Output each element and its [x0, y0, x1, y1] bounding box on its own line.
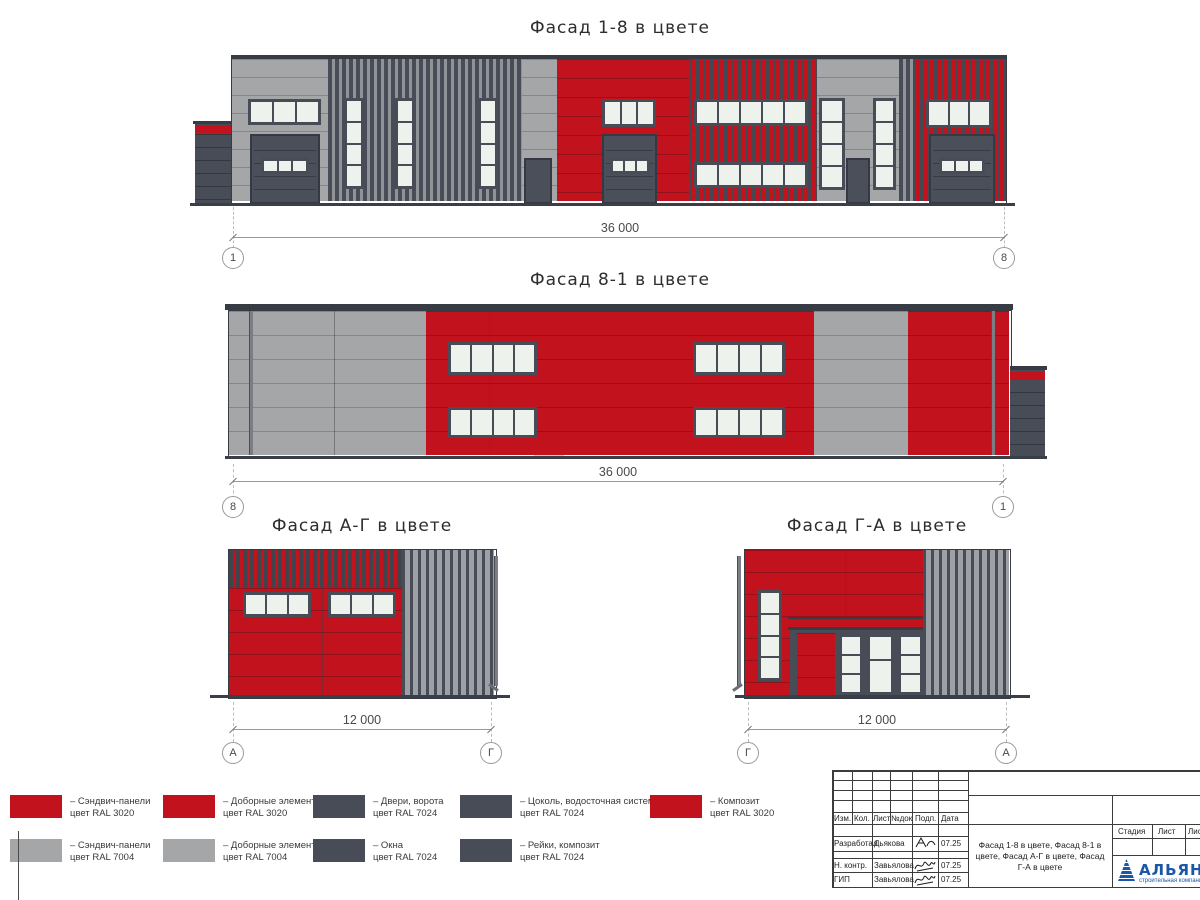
legend-label: – Композит — [710, 796, 774, 808]
facade-1-8-building — [231, 55, 1007, 205]
panel-seam — [322, 588, 323, 696]
title-block-line — [1112, 855, 1200, 856]
window-pane — [822, 167, 842, 187]
legend-item: – Рейки, композитцвет RAL 7024 — [460, 839, 600, 863]
slat-section-gray — [402, 550, 494, 696]
axis-bubble: 8 — [993, 247, 1015, 269]
dimension-label: 12 000 — [343, 713, 381, 727]
window-pane — [696, 345, 716, 372]
window-pane — [901, 656, 920, 673]
title-block-line — [832, 770, 1200, 772]
window-pane — [876, 101, 893, 121]
legend-label: цвет RAL 3020 — [223, 808, 322, 820]
window-pane — [622, 102, 637, 124]
window-pane — [876, 167, 893, 187]
window-pane — [901, 637, 920, 654]
title-block-line — [872, 770, 873, 887]
signature-role: Разработал — [834, 839, 878, 848]
dimension-label: 36 000 — [601, 221, 639, 235]
legend-label: цвет RAL 7024 — [373, 808, 444, 820]
window-pane — [293, 161, 306, 171]
facade-g-a-title: Фасад Г-А в цвете — [787, 516, 967, 536]
legend-item: – Цоколь, водосточная системацвет RAL 70… — [460, 795, 660, 819]
dimension-label: 36 000 — [599, 465, 637, 479]
facade-a-g-drawing — [210, 548, 510, 700]
legend-item: – Доборные элементыцвет RAL 7004 — [163, 839, 322, 863]
panel-seam — [334, 311, 335, 455]
company-tagline: строительная компания — [1139, 878, 1200, 884]
slat-section-gray — [923, 550, 1009, 696]
title-block-line — [1185, 824, 1186, 855]
downpipe — [249, 311, 253, 455]
window-pane — [842, 656, 860, 673]
window-pane — [398, 123, 412, 143]
ground-line — [210, 695, 510, 698]
legend-item: – Окнацвет RAL 7024 — [313, 839, 437, 863]
window-pane — [472, 345, 491, 372]
window-pane — [761, 637, 779, 657]
panel-section-gray — [814, 311, 908, 455]
legend-item: – Доборные элементыцвет RAL 3020 — [163, 795, 322, 819]
window-pane — [274, 102, 295, 122]
title-block-line — [938, 770, 939, 887]
revision-header-cell: Подп. — [915, 814, 936, 823]
garage-door-window — [261, 158, 309, 174]
window — [448, 407, 537, 438]
window — [448, 342, 537, 375]
window-pane — [297, 102, 318, 122]
legend-label: – Доборные элементы — [223, 796, 322, 808]
window-pane — [515, 345, 534, 372]
axis-bubble: А — [995, 742, 1017, 764]
window — [478, 98, 498, 189]
window — [873, 98, 896, 190]
legend-item: – Композитцвет RAL 3020 — [650, 795, 774, 819]
window — [694, 162, 808, 188]
extension-line — [1006, 702, 1007, 742]
axis-bubble: 1 — [992, 496, 1014, 518]
signature-date: 07.25 — [941, 861, 961, 870]
window-pane — [785, 165, 805, 185]
window-pane — [613, 161, 623, 171]
window-pane — [374, 595, 393, 614]
garage-door — [929, 134, 995, 204]
window-pane — [950, 102, 969, 125]
window-pane — [625, 161, 635, 171]
title-block-line — [1152, 824, 1153, 855]
stage-header-cell: Стадия — [1118, 827, 1145, 836]
slat-strip — [899, 59, 913, 201]
panel-section-gray — [229, 311, 426, 455]
legend-label: цвет RAL 3020 — [70, 808, 150, 820]
facade-1-8-drawing — [195, 55, 1010, 213]
window-pane — [970, 102, 989, 125]
window-pane — [481, 166, 495, 186]
stage-header-cell: Лист — [1158, 827, 1175, 836]
sheet-description: Фасад 1-8 в цвете, Фасад 8-1 в цвете, Фа… — [972, 828, 1108, 884]
door-rail — [870, 659, 891, 661]
legend-swatch — [460, 795, 512, 818]
window — [819, 98, 845, 190]
window — [693, 342, 785, 375]
legend-label: цвет RAL 3020 — [710, 808, 774, 820]
dimension-line — [748, 729, 1006, 730]
window-pane — [481, 123, 495, 143]
window-pane — [970, 161, 982, 171]
company-name: АЛЬЯНС — [1139, 861, 1200, 879]
revision-header-cell: Лист — [873, 814, 890, 823]
facade-g-a-drawing — [735, 548, 1030, 700]
legend-label: – Цоколь, водосточная система — [520, 796, 660, 808]
title-block-line — [968, 795, 1200, 796]
legend-swatch — [460, 839, 512, 862]
legend-swatch — [163, 795, 215, 818]
window-pane — [761, 593, 779, 613]
facade-8-1-title: Фасад 8-1 в цвете — [530, 270, 710, 290]
window-pane — [398, 101, 412, 121]
revision-header-cell: Дата — [941, 814, 959, 823]
window — [758, 590, 782, 681]
signature-role: ГИП — [834, 875, 850, 884]
legend-label: – Доборные элементы — [223, 840, 322, 852]
window-pane — [876, 145, 893, 165]
title-block-line — [1112, 838, 1200, 839]
window-pane — [762, 410, 782, 435]
window-pane — [761, 658, 779, 678]
legend-item: – Двери, воротацвет RAL 7024 — [313, 795, 444, 819]
signature-name: Завьялова — [874, 875, 914, 884]
garage-door-window — [939, 158, 985, 174]
title-block-line — [832, 836, 968, 837]
window-pane — [451, 345, 470, 372]
garage-door — [602, 134, 657, 204]
signature — [914, 836, 936, 849]
window-pane — [347, 101, 361, 121]
axis-bubble: Г — [737, 742, 759, 764]
drawing-sheet: АЛЬЯНС Фасад 1-8 в цвете — [0, 0, 1200, 900]
window — [328, 592, 396, 617]
title-block-line — [832, 872, 968, 873]
legend-label: – Сэндвич-панели — [70, 840, 150, 852]
window-pane — [398, 166, 412, 186]
stage-header-cell: Листов — [1188, 827, 1200, 836]
window — [694, 99, 808, 126]
window-pane — [719, 102, 739, 123]
legend-swatch — [313, 795, 365, 818]
window-pane — [901, 675, 920, 692]
window — [693, 407, 785, 438]
facade-8-1-drawing — [225, 300, 1047, 462]
window-pane — [719, 165, 739, 185]
title-block-line — [968, 770, 969, 887]
signature-date: 07.25 — [941, 875, 961, 884]
window-pane — [494, 410, 513, 435]
annex-cap — [1010, 366, 1047, 370]
window — [602, 99, 656, 127]
window-pane — [472, 410, 491, 435]
title-block-line — [832, 887, 1200, 889]
window-pane — [741, 102, 761, 123]
annex-red-stripe — [1010, 372, 1045, 380]
window — [248, 99, 321, 125]
window-pane — [347, 166, 361, 186]
title-block-line — [832, 851, 968, 852]
axis-bubble: А — [222, 742, 244, 764]
entrance-door — [524, 158, 552, 204]
entrance-canopy — [788, 617, 928, 630]
annex-red-stripe — [195, 125, 231, 133]
legend-label: цвет RAL 7024 — [520, 852, 600, 864]
window-pane — [942, 161, 954, 171]
porch-red-panel — [797, 633, 835, 695]
facade-a-g-title: Фасад А-Г в цвете — [272, 516, 452, 536]
signature — [914, 873, 936, 886]
signature-name: Дьякова — [874, 839, 905, 848]
title-block: Изм. Кол. Лист №док Подп. Дата Разработа… — [832, 770, 1200, 888]
legend-swatch — [650, 795, 702, 818]
legend-label: цвет RAL 7024 — [373, 852, 437, 864]
window-pane — [347, 145, 361, 165]
legend-label: цвет RAL 7004 — [70, 852, 150, 864]
legend-swatch — [163, 839, 215, 862]
legend-label: цвет RAL 7024 — [520, 808, 660, 820]
window-pane — [697, 165, 717, 185]
window-pane — [398, 145, 412, 165]
dimension-line — [233, 481, 1003, 482]
window-pane — [246, 595, 265, 614]
legend-label: – Рейки, композит — [520, 840, 600, 852]
title-block-line — [832, 858, 968, 859]
signature-name: Завьялова — [874, 861, 914, 870]
facade-8-1-building — [228, 310, 1012, 458]
window-pane — [842, 675, 860, 692]
window-pane — [264, 161, 277, 171]
legend-item: – Сэндвич-панелицвет RAL 7004 — [10, 839, 150, 863]
window-pane — [251, 102, 272, 122]
dimension-line — [233, 729, 491, 730]
window-pane — [697, 102, 717, 123]
signature — [914, 859, 936, 872]
window-pane — [637, 161, 647, 171]
annex-right — [1010, 366, 1045, 456]
window-pane — [929, 102, 948, 125]
glass-entrance-door — [867, 634, 894, 695]
title-block-line — [1112, 795, 1113, 887]
window-pane — [481, 145, 495, 165]
legend-label: цвет RAL 7004 — [223, 852, 322, 864]
axis-bubble: Г — [480, 742, 502, 764]
window-pane — [761, 615, 779, 635]
window-pane — [763, 165, 783, 185]
window-pane — [494, 345, 513, 372]
extension-line — [233, 702, 234, 742]
extension-line — [491, 702, 492, 742]
window-pane — [289, 595, 308, 614]
window — [839, 634, 863, 695]
title-block-line — [832, 770, 834, 888]
legend-label: – Сэндвич-панели — [70, 796, 150, 808]
window-pane — [352, 595, 371, 614]
window-pane — [718, 345, 738, 372]
window — [395, 98, 415, 189]
legend-item: – Сэндвич-панелицвет RAL 3020 — [10, 795, 150, 819]
window-pane — [822, 123, 842, 143]
legend-swatch — [10, 795, 62, 818]
ground-line — [190, 203, 1015, 206]
window-pane — [718, 410, 738, 435]
legend-label: – Двери, ворота — [373, 796, 444, 808]
axis-bubble: 8 — [222, 496, 244, 518]
dimension-label: 12 000 — [858, 713, 896, 727]
entrance-porch — [790, 630, 927, 697]
window-pane — [481, 101, 495, 121]
downpipe-elbow — [732, 683, 743, 692]
window-pane — [876, 123, 893, 143]
window-pane — [741, 165, 761, 185]
alliance-logo-icon — [1118, 859, 1135, 881]
signature-role: Н. контр. — [834, 861, 867, 870]
window-pane — [822, 145, 842, 165]
title-block-line — [852, 770, 853, 824]
window-pane — [605, 102, 620, 124]
sheet-frame-line — [18, 831, 19, 900]
facade-1-8-title: Фасад 1-8 в цвете — [530, 18, 710, 38]
entrance-door — [846, 158, 870, 204]
slat-band-top — [229, 550, 407, 588]
revision-header-cell: Изм. — [834, 814, 851, 823]
window-pane — [267, 595, 286, 614]
window — [926, 99, 992, 128]
window-pane — [762, 345, 782, 372]
garage-door — [250, 134, 320, 204]
window-pane — [347, 123, 361, 143]
window-pane — [279, 161, 292, 171]
window-pane — [956, 161, 968, 171]
window-pane — [638, 102, 653, 124]
window-pane — [515, 410, 534, 435]
legend-swatch — [313, 839, 365, 862]
ground-line — [735, 695, 1030, 698]
window-pane — [451, 410, 470, 435]
window-pane — [740, 345, 760, 372]
window-pane — [822, 101, 842, 121]
revision-header-cell: Кол. — [854, 814, 870, 823]
axis-bubble: 1 — [222, 247, 244, 269]
downpipe — [737, 556, 741, 686]
revision-header-cell: №док — [891, 814, 912, 823]
window-pane — [696, 410, 716, 435]
garage-door-window — [610, 158, 650, 174]
canopy-red-band — [788, 619, 928, 627]
window-pane — [785, 102, 805, 123]
window — [243, 592, 311, 617]
window-pane — [763, 102, 783, 123]
signature-date: 07.25 — [941, 839, 961, 848]
window-pane — [331, 595, 350, 614]
dimension-line — [233, 237, 1004, 238]
annex-cap — [193, 121, 231, 124]
legend-label: – Окна — [373, 840, 437, 852]
window-pane — [842, 637, 860, 654]
ground-line — [225, 456, 1047, 459]
annex-left — [195, 121, 231, 203]
window — [898, 634, 923, 695]
window-pane — [740, 410, 760, 435]
downpipe — [991, 311, 995, 455]
extension-line — [748, 702, 749, 742]
title-block-line — [832, 824, 1200, 825]
window — [344, 98, 364, 189]
downpipe — [494, 556, 498, 686]
